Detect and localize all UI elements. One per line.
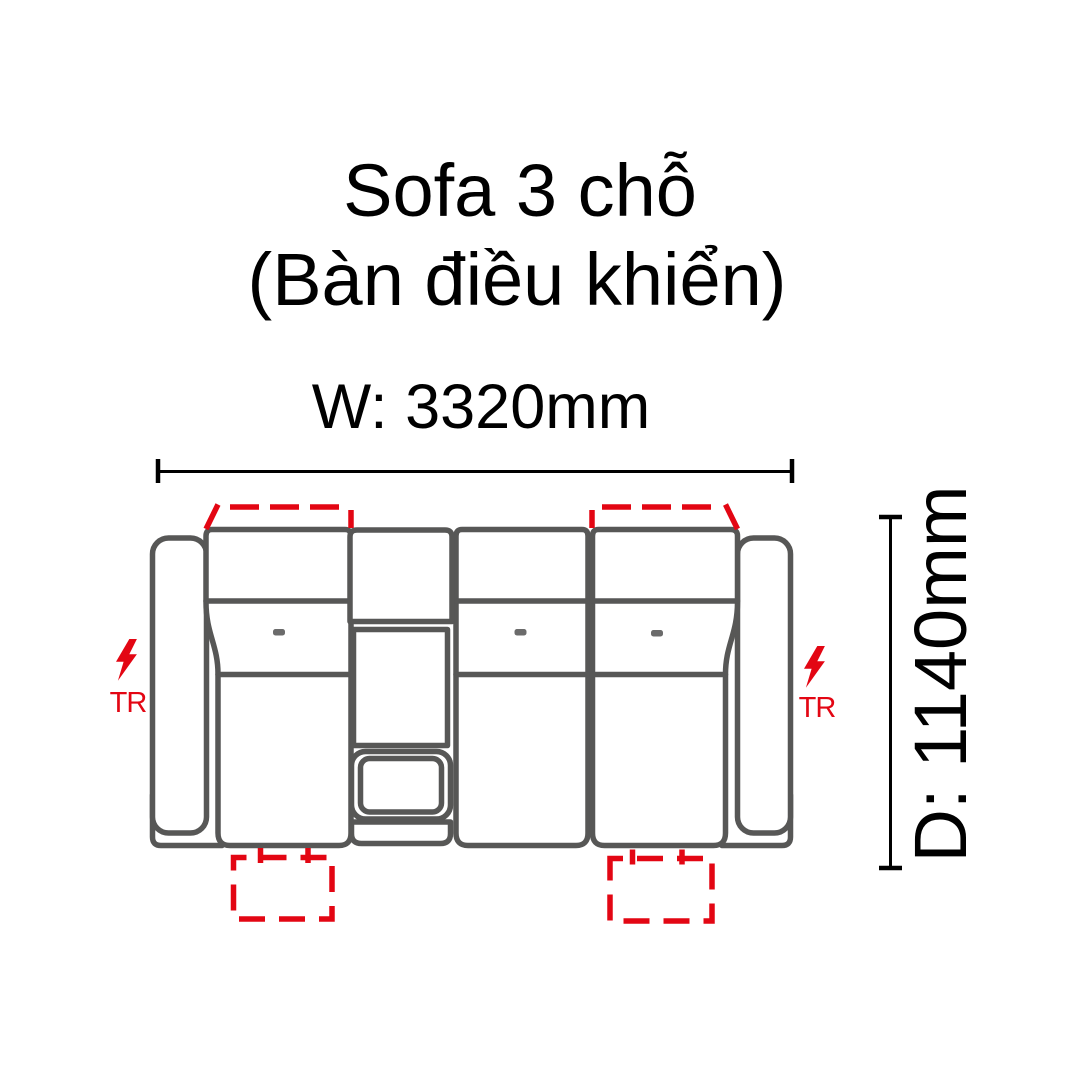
lightning-bolt-icon [804, 646, 825, 688]
seat-center-recline-button [515, 629, 527, 636]
console-body [354, 630, 448, 746]
seat-left-outline [206, 530, 351, 846]
seat-center [456, 530, 588, 846]
seat-right [593, 530, 738, 846]
console-back-pad [350, 530, 452, 622]
width-dimension-label: W: 3320mm [312, 372, 650, 442]
control-console [350, 530, 452, 844]
diagram-title: Sofa 3 chỗ [343, 149, 697, 232]
transformer-mark-right: TR [799, 646, 836, 724]
width-dimension: W: 3320mm [158, 372, 792, 483]
diagram-subtitle: (Bàn điều khiển) [248, 238, 787, 321]
console-tray-inner [361, 759, 442, 813]
footrest-motion-right [610, 850, 712, 922]
depth-dimension: D: 1140mm [879, 486, 982, 868]
footrest-motion-left [234, 848, 333, 919]
depth-dimension-label: D: 1140mm [899, 486, 982, 863]
left-armrest [153, 538, 207, 833]
lightning-bolt-icon [116, 639, 137, 681]
seat-right-recline-button [651, 630, 663, 637]
seat-left [206, 530, 351, 846]
headrest-motion-left-slant [206, 505, 218, 530]
headrest-motion-right-slant [726, 505, 738, 530]
headrest-motion-left [206, 505, 351, 530]
footrest-motion-left-box [234, 858, 333, 920]
seat-right-outline [593, 530, 738, 846]
seat-center-outline [456, 530, 588, 846]
transformer-label-left: TR [110, 687, 147, 719]
footrest-motion-right-box [610, 859, 712, 922]
sofa-dimension-diagram: Sofa 3 chỗ (Bàn điều khiển) W: 3320mm D:… [0, 0, 1088, 1089]
sofa-top-view-canvas: Sofa 3 chỗ (Bàn điều khiển) W: 3320mm D:… [0, 0, 1088, 1089]
transformer-mark-left: TR [110, 639, 147, 719]
right-armrest [738, 538, 791, 833]
seat-left-recline-button [273, 629, 285, 636]
headrest-motion-right [592, 505, 738, 530]
transformer-label-right: TR [799, 692, 836, 724]
console-front-strip [352, 822, 451, 844]
